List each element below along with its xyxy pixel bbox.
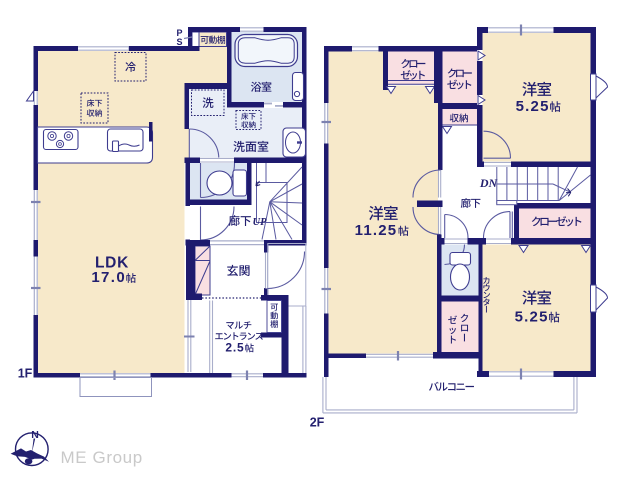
svg-text:2F: 2F [310, 416, 325, 430]
svg-text:5.25: 5.25 [515, 309, 549, 326]
svg-text:17.0: 17.0 [91, 269, 126, 286]
svg-text:UP: UP [253, 217, 268, 228]
svg-text:DN: DN [479, 176, 499, 190]
svg-text:1F: 1F [18, 367, 33, 381]
svg-text:S: S [176, 37, 182, 47]
svg-text:2.5: 2.5 [225, 341, 244, 355]
svg-text:ME Group: ME Group [61, 448, 143, 467]
svg-text:11.25: 11.25 [355, 222, 398, 239]
svg-text:5.25: 5.25 [516, 98, 550, 115]
